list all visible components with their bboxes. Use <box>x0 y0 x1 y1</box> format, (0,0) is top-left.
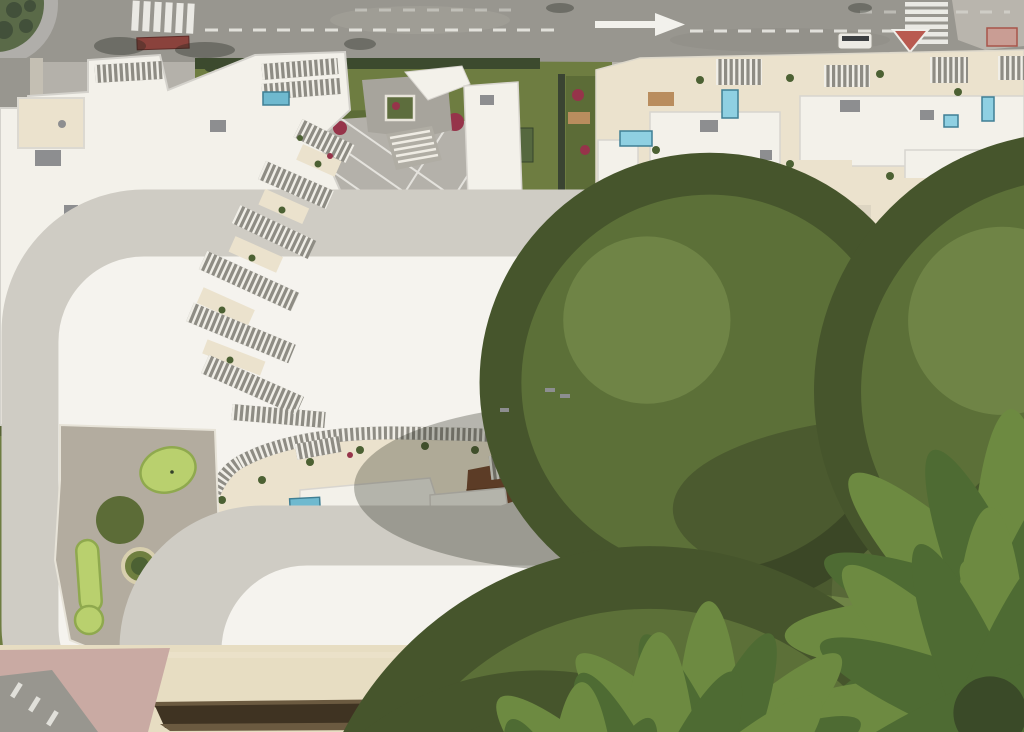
neighbor-building-roof <box>987 28 1017 46</box>
square-planter <box>386 96 414 120</box>
nw-roof-terrace <box>18 98 84 148</box>
garden-dining-table <box>568 112 590 124</box>
garden-plunge-pool <box>263 92 289 105</box>
planter-flowers <box>392 102 400 110</box>
terrace-flower <box>327 153 333 159</box>
rooftop-unit <box>480 95 494 105</box>
lawn-island <box>96 496 144 544</box>
white-van <box>838 33 872 49</box>
golf-hole <box>170 470 174 474</box>
rooftop-dining-table <box>648 92 674 106</box>
terrace-table <box>58 120 66 128</box>
aerial-render <box>0 0 1024 732</box>
